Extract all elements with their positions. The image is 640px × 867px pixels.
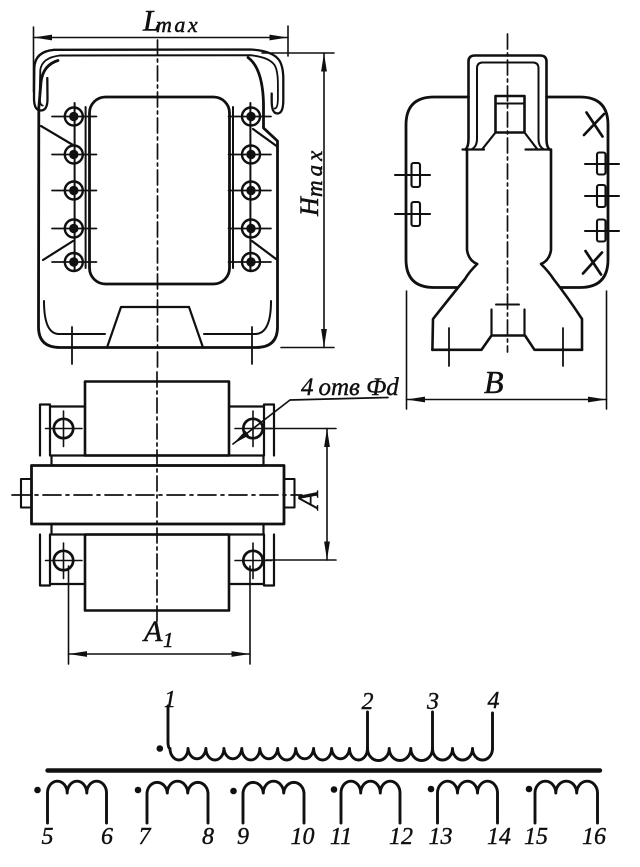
- svg-text:10: 10: [291, 824, 315, 850]
- svg-text:14: 14: [487, 824, 511, 850]
- svg-text:H: H: [295, 196, 324, 217]
- svg-text:7: 7: [139, 824, 152, 850]
- svg-text:6: 6: [101, 824, 113, 850]
- svg-text:1: 1: [163, 628, 174, 652]
- svg-text:4: 4: [488, 688, 500, 714]
- svg-text:A: A: [292, 490, 325, 511]
- svg-text:4 отв Фd: 4 отв Фd: [301, 374, 399, 401]
- svg-text:9: 9: [237, 824, 249, 850]
- svg-text:15: 15: [524, 824, 548, 850]
- svg-text:3: 3: [426, 689, 439, 715]
- svg-text:5: 5: [42, 824, 54, 850]
- svg-text:В: В: [484, 364, 504, 400]
- svg-text:8: 8: [202, 824, 214, 850]
- svg-text:1: 1: [164, 687, 176, 713]
- svg-text:max: max: [156, 12, 200, 37]
- svg-text:13: 13: [429, 824, 453, 850]
- svg-text:12: 12: [389, 824, 413, 850]
- svg-text:2: 2: [362, 689, 374, 715]
- svg-text:11: 11: [330, 824, 352, 850]
- svg-text:A: A: [142, 615, 163, 648]
- svg-text:16: 16: [582, 824, 606, 850]
- svg-text:max: max: [302, 147, 327, 197]
